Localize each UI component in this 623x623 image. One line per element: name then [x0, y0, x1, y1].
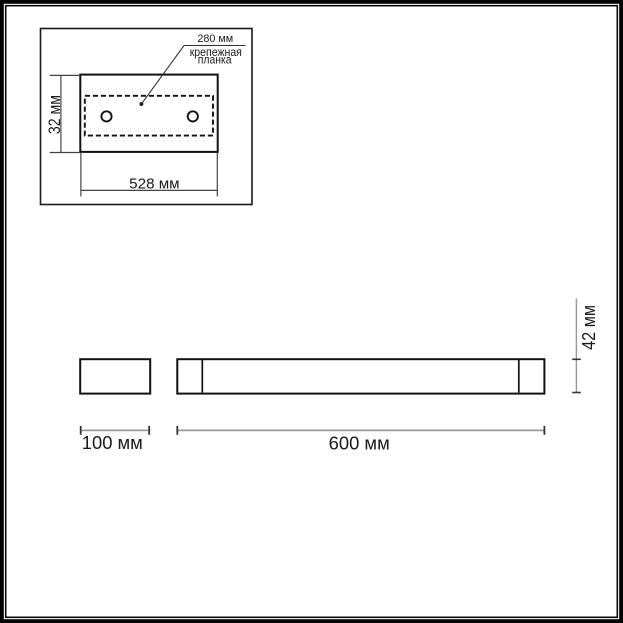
svg-text:42 мм: 42 мм — [578, 305, 599, 350]
svg-text:32 мм: 32 мм — [45, 95, 64, 134]
svg-text:100 мм: 100 мм — [82, 432, 143, 453]
svg-text:планка: планка — [198, 53, 232, 67]
svg-text:528 мм: 528 мм — [129, 175, 179, 192]
svg-text:280 мм: 280 мм — [197, 33, 233, 45]
svg-text:600 мм: 600 мм — [329, 432, 390, 453]
